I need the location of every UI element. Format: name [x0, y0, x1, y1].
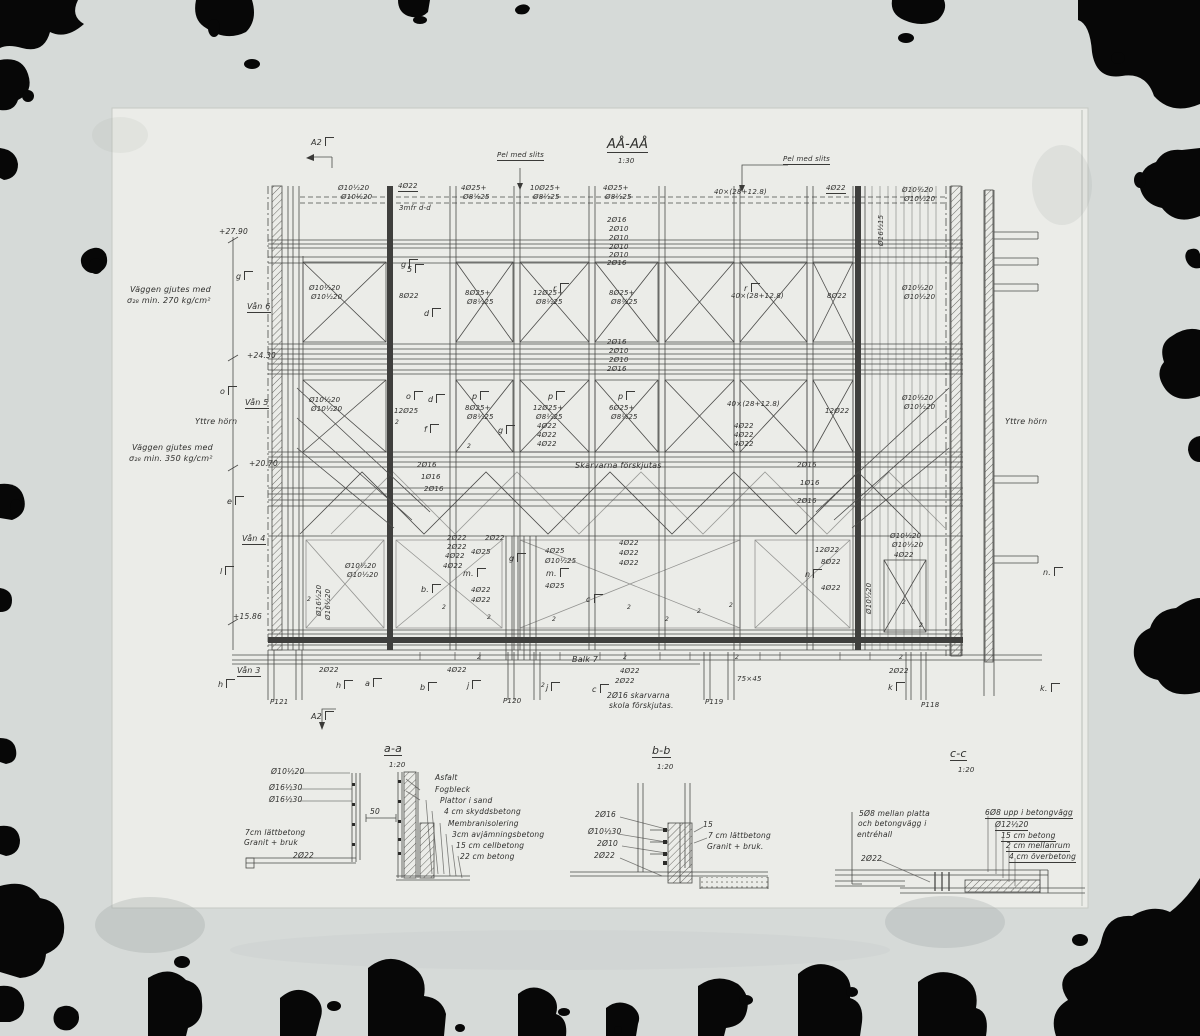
- section-scale: 1:30: [618, 158, 635, 165]
- section-marker: d: [424, 310, 429, 318]
- rebar-annotation: 4Ø22: [471, 587, 491, 594]
- section-marker: b: [420, 684, 425, 692]
- rebar-annotation: 2Ø22: [319, 667, 339, 674]
- section-marker: e: [227, 498, 232, 506]
- rebar-annotation: 4Ø22: [734, 423, 754, 430]
- detail-aa-label: Membranisolering: [448, 820, 519, 828]
- detail-bb-scale: 1:20: [657, 764, 674, 771]
- detail-aa-label: Ø16½30: [269, 796, 302, 804]
- rebar-annotation: 4Ø25: [545, 583, 565, 590]
- rebar-annotation: Ø10½20: [345, 563, 376, 570]
- pel-med-slits-left: Pel med slits: [497, 152, 544, 161]
- rebar-annotation: Ø8½25: [605, 194, 632, 201]
- rebar-annotation: 2Ø10: [609, 348, 629, 355]
- detail-bb-label: 15: [703, 821, 713, 829]
- floor-label-van5: Vån 5: [245, 399, 269, 409]
- pier-label-p118: P118: [921, 702, 939, 709]
- section-marker: o: [406, 393, 411, 401]
- section-marker: a: [365, 680, 370, 688]
- rebar-annotation: Ø10½20: [892, 542, 923, 549]
- rebar-annotation: 4Ø25: [545, 548, 565, 555]
- rebar-annotation: 4Ø22: [894, 552, 914, 559]
- rebar-annotation: Ø8½25: [611, 299, 638, 306]
- rebar-annotation: 2Ø16: [797, 498, 817, 505]
- rebar-annotation: 2: [899, 655, 903, 661]
- beam-note-line2: skola förskjutas.: [609, 702, 674, 710]
- rebar-annotation: Ø8½25: [536, 414, 563, 421]
- rebar-annotation: 2: [467, 444, 471, 450]
- section-marker: 5: [407, 266, 412, 274]
- rebar-annotation: Ø10½20: [341, 194, 372, 201]
- rebar-annotation: 4Ø22: [821, 585, 841, 592]
- rebar-annotation: 4Ø25+: [603, 185, 629, 192]
- rebar-annotation: 40×(28+12.8): [731, 293, 784, 300]
- rebar-annotation: 4Ø22: [619, 540, 639, 547]
- rebar-annotation: Ø10½20: [890, 533, 921, 540]
- section-marker: g: [236, 273, 241, 281]
- section-marker: k: [888, 684, 893, 692]
- section-marker: p: [548, 393, 553, 401]
- section-marker: c: [586, 596, 591, 604]
- wall-note-350-line1: Väggen gjutes med: [132, 444, 213, 452]
- pier-label-p121: P121: [270, 699, 288, 706]
- rebar-annotation: 2: [735, 655, 739, 661]
- rebar-annotation: 6Ø25+: [609, 405, 635, 412]
- rebar-annotation: 1Ø16: [800, 480, 820, 487]
- rebar-annotation: 8Ø22: [827, 293, 847, 300]
- detail-aa-label: 7cm lättbetong: [245, 829, 305, 837]
- section-marker: A2: [311, 713, 322, 721]
- rebar-annotation: Ø8½25: [463, 194, 490, 201]
- rebar-annotation: Ø10½20: [902, 187, 933, 194]
- detail-bb-label: 2Ø10: [597, 840, 618, 848]
- rebar-annotation: 2: [697, 609, 701, 615]
- detail-aa-label: 22 cm betong: [460, 853, 515, 861]
- floor-label-van3: Vån 3: [237, 667, 261, 677]
- drawing-sheet: [112, 108, 1088, 908]
- rebar-annotation: Ø8½25: [536, 299, 563, 306]
- detail-bb-title: b-b: [652, 745, 671, 758]
- detail-aa-label: 3cm avjämningsbetong: [452, 831, 544, 839]
- detail-aa-label: Ø10½20: [271, 768, 304, 776]
- detail-cc-label: Ø12½20: [995, 821, 1028, 831]
- rebar-annotation: 12Ø22: [825, 408, 849, 415]
- rebar-annotation: Ø10½20: [904, 404, 935, 411]
- rebar-annotation: 2Ø10: [609, 244, 629, 251]
- detail-aa-label: Granit + bruk: [244, 839, 298, 847]
- rebar-annotation: Ø8½25: [533, 194, 560, 201]
- rebar-annotation: 4Ø22: [537, 423, 557, 430]
- rebar-annotation: Ø10½25: [545, 558, 576, 565]
- rebar-annotation: 4Ø25: [471, 549, 491, 556]
- rebar-annotation: Ø16½20: [325, 589, 332, 620]
- floor-label-van6: Vån 6: [247, 303, 271, 313]
- rebar-annotation: 4Ø22: [620, 668, 640, 675]
- pier-label-p120: P120: [503, 698, 521, 705]
- elevation-2430: +24.30: [247, 352, 276, 360]
- section-marker: n: [805, 571, 810, 579]
- rebar-annotation: 2: [442, 605, 446, 611]
- section-marker: j: [546, 684, 548, 692]
- section-marker: d: [428, 396, 433, 404]
- detail-aa-dim-50: 50: [370, 808, 380, 816]
- rebar-annotation: Ø10½20: [347, 572, 378, 579]
- rebar-annotation: 2Ø10: [609, 357, 629, 364]
- detail-aa-label: Asfalt: [435, 774, 458, 782]
- detail-cc-title: c-c: [950, 748, 967, 761]
- rebar-annotation: 2Ø22: [615, 678, 635, 685]
- rebar-annotation: 8Ø22: [821, 559, 841, 566]
- rebar-annotation: 2Ø22: [447, 535, 467, 542]
- detail-cc-label: 5Ø8 mellan platta: [859, 810, 930, 818]
- detail-cc-label: 4 cm överbetong: [1009, 853, 1076, 863]
- detail-aa-label: 2Ø22: [293, 852, 314, 860]
- rebar-annotation: Ø10½20: [338, 185, 369, 192]
- rebar-annotation: Ø10½20: [311, 406, 342, 413]
- wall-note-350-line2: σ₂₈ min. 350 kg/cm²: [129, 455, 213, 463]
- section-marker: m.: [546, 570, 557, 578]
- rebar-annotation: 2Ø22: [485, 535, 505, 542]
- section-marker: p: [618, 393, 623, 401]
- rebar-annotation: 10Ø25+: [530, 185, 560, 192]
- section-marker: A2: [311, 139, 322, 147]
- rebar-annotation: 8Ø25+: [465, 405, 491, 412]
- rebar-annotation: 4Ø25+: [461, 185, 487, 192]
- rebar-annotation: Ø8½25: [467, 414, 494, 421]
- section-marker: n.: [1043, 569, 1051, 577]
- detail-aa-scale: 1:20: [389, 762, 406, 769]
- section-marker: j: [467, 682, 469, 690]
- rebar-annotation: 2Ø10: [609, 226, 629, 233]
- rebar-annotation: Ø10½20: [866, 583, 873, 614]
- rebar-annotation: 12Ø22: [815, 547, 839, 554]
- rebar-annotation: 4Ø22: [443, 563, 463, 570]
- rebar-annotation: 4Ø22: [734, 432, 754, 439]
- section-marker: f: [424, 426, 427, 434]
- rebar-annotation: 4Ø22: [734, 441, 754, 448]
- rebar-annotation: 2Ø22: [889, 668, 909, 675]
- wall-note-270-line1: Väggen gjutes med: [130, 286, 211, 294]
- beam-note-line1: 2Ø16 skarvarna: [607, 692, 670, 700]
- pier-label-p119: P119: [705, 699, 723, 706]
- yttre-horn-right: Yttre hörn: [1005, 418, 1047, 426]
- rebar-annotation: 4Ø22: [537, 441, 557, 448]
- section-marker: r: [553, 285, 557, 293]
- rebar-annotation: 2: [395, 420, 399, 426]
- detail-bb-label: 2Ø16: [595, 811, 616, 819]
- rebar-annotation: Ø10½20: [311, 294, 342, 301]
- rebar-annotation: 4Ø22: [447, 667, 467, 674]
- rebar-annotation: 4Ø22: [471, 597, 491, 604]
- pel-med-slits-right: Pel med slits: [783, 156, 830, 165]
- splice-note: Skarvarna förskjutas: [575, 462, 662, 470]
- rebar-annotation: 4Ø22: [619, 560, 639, 567]
- detail-aa-label: Fogbleck: [435, 786, 470, 794]
- beam-dimension: 75×45: [737, 676, 762, 683]
- detail-bb-label: Ø10½30: [588, 828, 621, 836]
- section-marker: b.: [421, 586, 429, 594]
- elevation-2070: +20.70: [249, 460, 278, 468]
- detail-bb-label: 7 cm lättbetong: [708, 832, 771, 840]
- rebar-annotation: 2: [627, 605, 631, 611]
- detail-bb-label: Granit + bruk.: [707, 843, 763, 851]
- rebar-annotation: 2Ø16: [417, 462, 437, 469]
- rebar-annotation: 2Ø22: [447, 544, 467, 551]
- drawing-linework: [0, 0, 1200, 1036]
- wall-note-270-line2: σ₂₈ min. 270 kg/cm²: [127, 297, 211, 305]
- rebar-annotation: 4Ø22: [445, 553, 465, 560]
- detail-bb-label: 2Ø22: [594, 852, 615, 860]
- rebar-annotation: 2Ø16: [797, 462, 817, 469]
- rebar-annotation: 2Ø16: [607, 260, 627, 267]
- rebar-annotation: Ø10½20: [902, 395, 933, 402]
- elevation-1586: +15.86: [233, 613, 262, 621]
- rebar-annotation: Ø10½20: [904, 294, 935, 301]
- rebar-annotation: 2: [919, 623, 923, 629]
- rebar-annotation: 2: [665, 617, 669, 623]
- rebar-annotation: 2: [541, 683, 545, 689]
- detail-cc-label: 6Ø8 upp i betongvägg: [985, 809, 1073, 819]
- detail-aa-label: Ø16½30: [269, 784, 302, 792]
- detail-aa-title: a-a: [384, 743, 402, 756]
- section-marker: m.: [463, 570, 474, 578]
- rebar-annotation: Ø10½20: [902, 285, 933, 292]
- rebar-annotation: 40×(28+12.8): [714, 189, 767, 196]
- rebar-annotation: Ø10½20: [309, 285, 340, 292]
- detail-cc-label: och betongvägg i: [858, 820, 927, 828]
- rebar-annotation: 2: [477, 655, 481, 661]
- rebar-annotation: 2: [729, 603, 733, 609]
- section-marker: r: [744, 285, 748, 293]
- floor-label-van4: Vån 4: [242, 535, 266, 545]
- rebar-annotation: 12Ø25+: [533, 405, 563, 412]
- detail-aa-label: 15 cm cellbetong: [456, 842, 524, 850]
- detail-aa-label: Plattor i sand: [440, 797, 492, 805]
- rebar-annotation: 2Ø16: [607, 339, 627, 346]
- elevation-2790: +27.90: [219, 228, 248, 236]
- rebar-annotation: 2Ø16: [607, 366, 627, 373]
- rebar-annotation: 1Ø16: [421, 474, 441, 481]
- rebar-annotation: 2: [623, 655, 627, 661]
- rebar-annotation: 40×(28+12.8): [727, 401, 780, 408]
- rebar-annotation: 8Ø25+: [609, 290, 635, 297]
- rebar-annotation: 2Ø16: [607, 217, 627, 224]
- section-marker: o: [220, 388, 225, 396]
- rebar-annotation: Ø10½20: [309, 397, 340, 404]
- rebar-annotation: 8Ø25+: [465, 290, 491, 297]
- rebar-annotation: 3mfr d-d: [399, 205, 431, 212]
- rebar-annotation: 4Ø22: [537, 432, 557, 439]
- section-marker: h: [336, 682, 341, 690]
- detail-cc-scale: 1:20: [958, 767, 975, 774]
- scanned-structural-drawing: AÅ-AÅ 1:30 Pel med slits Pel med slits V…: [0, 0, 1200, 1036]
- yttre-horn-left: Yttre hörn: [195, 418, 237, 426]
- rebar-annotation: Ø10½20: [904, 196, 935, 203]
- detail-cc-label: entréhall: [857, 831, 892, 839]
- rebar-annotation: 2: [307, 597, 311, 603]
- rebar-annotation: Ø16½15: [878, 215, 885, 246]
- detail-aa-label: 4 cm skyddsbetong: [444, 808, 521, 816]
- section-marker: p: [472, 393, 477, 401]
- rebar-annotation: Ø16½20: [316, 585, 323, 616]
- detail-cc-label: 2Ø22: [861, 855, 882, 863]
- rebar-annotation: 12Ø25: [394, 408, 418, 415]
- rebar-annotation: 2: [902, 600, 906, 606]
- section-marker: g: [509, 555, 514, 563]
- detail-cc-label: 2 cm mellanrum: [1006, 842, 1070, 852]
- section-marker: k.: [1040, 685, 1048, 693]
- section-marker: c: [592, 686, 597, 694]
- rebar-annotation: 2: [552, 617, 556, 623]
- beam-label: Balk 7: [572, 656, 598, 664]
- rebar-annotation: 8Ø22: [399, 293, 419, 300]
- section-marker: h: [218, 681, 223, 689]
- section-title: AÅ-AÅ: [607, 138, 648, 153]
- rebar-annotation: 2: [487, 615, 491, 621]
- rebar-annotation: 4Ø22: [826, 185, 846, 194]
- rebar-annotation: Ø8½25: [611, 414, 638, 421]
- section-marker: g: [498, 427, 503, 435]
- rebar-annotation: 4Ø22: [398, 183, 418, 192]
- rebar-annotation: 2Ø10: [609, 235, 629, 242]
- rebar-annotation: 4Ø22: [619, 550, 639, 557]
- section-marker: g: [401, 261, 406, 269]
- rebar-annotation: 2Ø10: [609, 252, 629, 259]
- section-marker: l: [220, 568, 222, 576]
- rebar-annotation: Ø8½25: [467, 299, 494, 306]
- rebar-annotation: 2Ø16: [424, 486, 444, 493]
